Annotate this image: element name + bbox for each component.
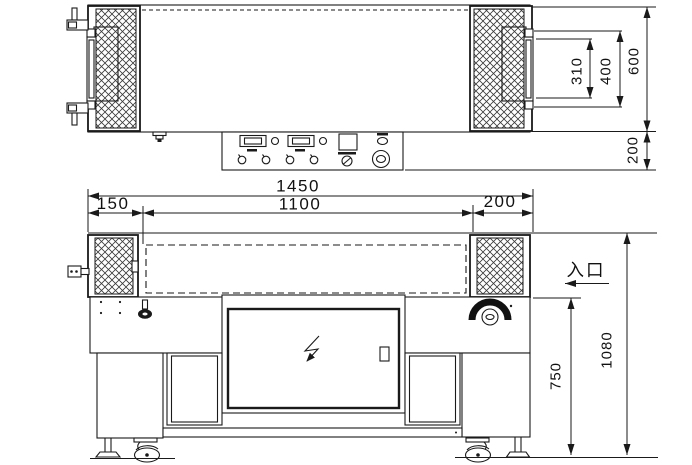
top-left-roller-block [67, 6, 140, 131]
tunnel-hidden-outline [146, 245, 466, 293]
electrical-cabinet [222, 295, 405, 413]
roller-hatch [477, 238, 523, 294]
latch [132, 261, 138, 272]
side-handle [68, 266, 89, 277]
dim-text-200-panel: 200 [625, 136, 642, 164]
technical-drawing-canvas: 310 400 600 200 1450 150 1100 200 [0, 0, 692, 465]
caster-plate [134, 438, 157, 442]
clamp-handle-top [67, 8, 88, 30]
screw-dot [119, 312, 121, 314]
dim-text-1450: 1450 [276, 177, 320, 196]
roller-hatch [95, 238, 133, 294]
rail-cap [525, 101, 533, 109]
display-1-mark [247, 149, 257, 152]
left-leg [97, 353, 163, 438]
dim-text-200-right: 200 [484, 192, 517, 211]
foot-base [507, 452, 530, 457]
meter-mark [338, 152, 356, 155]
display-2-mark [295, 149, 305, 152]
knob-stem [143, 300, 148, 309]
bottom-rail [163, 428, 462, 437]
handle-rod [81, 269, 89, 275]
handle-pin [72, 8, 77, 20]
rail-cap [525, 29, 533, 37]
screw-dot [119, 301, 121, 303]
handle-pin [72, 113, 77, 125]
caster-plate [466, 438, 489, 442]
caster-hub [476, 453, 480, 457]
roller-rail [87, 37, 96, 101]
handle-dot [75, 270, 78, 273]
dim-text-750: 750 [548, 362, 565, 390]
top-view: 310 400 600 200 [67, 5, 656, 170]
dim-text-1080: 1080 [599, 331, 616, 368]
screw-dot [100, 312, 102, 314]
fitting-tip [158, 139, 162, 142]
handle-end [68, 266, 81, 277]
right-caster [466, 438, 491, 462]
roller-rail [524, 37, 533, 101]
drain-fitting [153, 132, 166, 142]
dim-text-310: 310 [569, 57, 586, 85]
right-lower-panel [405, 353, 460, 425]
front-right-roller-block [470, 235, 530, 297]
dim-text-1100: 1100 [279, 195, 322, 214]
handle-dot [70, 270, 73, 273]
entrance-label: 入口 [565, 260, 609, 284]
foot-base [96, 452, 120, 457]
control-panel [222, 132, 403, 170]
right-leveling-foot [507, 437, 530, 457]
rail-dot [455, 432, 457, 434]
pilot-mark [377, 133, 388, 136]
front-left-roller-block [68, 235, 138, 297]
top-view-body [88, 5, 530, 132]
top-right-roller-block [470, 6, 533, 131]
knob-slot [142, 313, 147, 316]
dim-text-600: 600 [626, 47, 643, 75]
right-leg [462, 353, 530, 437]
gauge-knob [482, 309, 498, 325]
front-view-top-dimensions: 1450 150 1100 200 [88, 177, 533, 245]
fitting-body [156, 136, 163, 140]
clamp-handle-bottom [67, 103, 88, 125]
left-lower-panel [167, 353, 222, 425]
screw-dot [100, 301, 102, 303]
caster-hub [145, 453, 149, 457]
gauge-dot [510, 305, 512, 307]
dim-text-400: 400 [598, 57, 615, 85]
front-view: 1450 150 1100 200 [68, 177, 658, 463]
machine-drawing: 310 400 600 200 1450 150 1100 200 [0, 0, 692, 465]
left-leveling-foot [96, 438, 120, 457]
entrance-text: 入口 [567, 260, 606, 280]
dim-text-150: 150 [97, 194, 130, 213]
